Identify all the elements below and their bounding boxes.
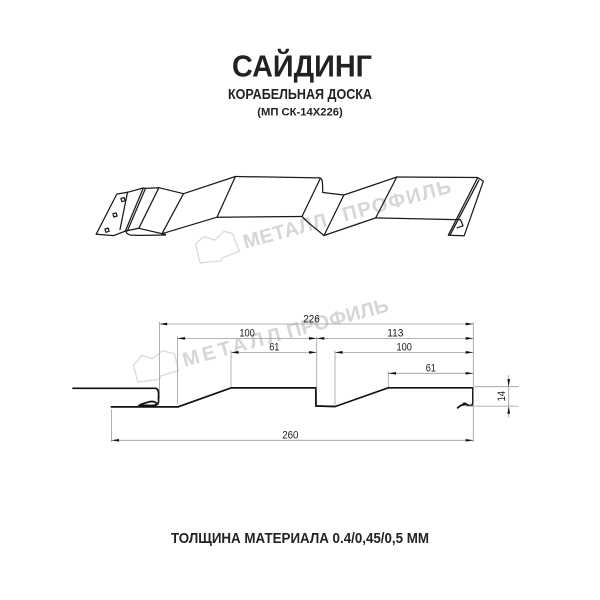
svg-text:100: 100	[397, 342, 412, 354]
svg-text:113: 113	[387, 328, 403, 340]
svg-text:226: 226	[303, 313, 319, 325]
svg-text:(МП СК-14Х226): (МП СК-14Х226)	[257, 107, 343, 119]
svg-text:14: 14	[496, 391, 508, 401]
svg-text:САЙДИНГ: САЙДИНГ	[232, 48, 372, 83]
svg-text:КОРАБЕЛЬНАЯ ДОСКА: КОРАБЕЛЬНАЯ ДОСКА	[228, 86, 372, 102]
svg-text:260: 260	[282, 429, 298, 441]
svg-text:61: 61	[269, 342, 279, 354]
svg-text:ТОЛЩИНА МАТЕРИАЛА 0.4/0,45/0,5: ТОЛЩИНА МАТЕРИАЛА 0.4/0,45/0,5 ММ	[171, 531, 429, 548]
svg-text:61: 61	[426, 362, 436, 374]
svg-text:100: 100	[239, 328, 254, 340]
